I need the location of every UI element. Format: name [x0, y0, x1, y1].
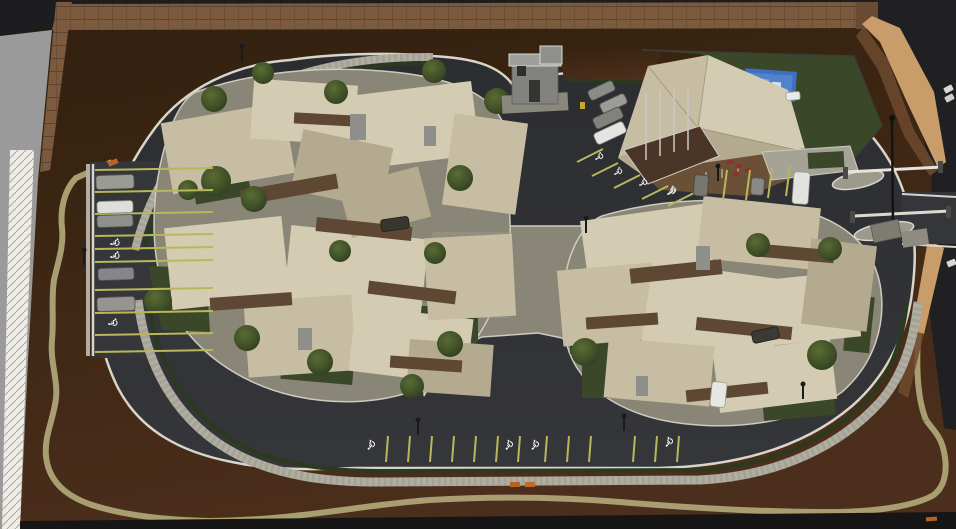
tree [201, 86, 227, 112]
street-light-head [240, 44, 245, 49]
accessible-parking-symbol: ♿ [108, 236, 124, 249]
vehicle-van-white [792, 171, 810, 204]
vehicle-car [693, 175, 708, 197]
tree [818, 237, 842, 261]
gate-post [843, 167, 848, 179]
render-stage: ♿♿♿♿♿♿♿♿♿♿♿♿ [0, 0, 956, 529]
vehicle-car [750, 178, 764, 196]
perimeter-wall-north [52, 2, 876, 30]
tree [400, 374, 424, 398]
tree [447, 165, 473, 191]
roof-stair-core [298, 328, 312, 350]
tree [234, 325, 260, 351]
street-light-head [716, 164, 721, 169]
tree [252, 62, 274, 84]
tree [241, 186, 267, 212]
accessible-parking-symbol: ♿ [106, 316, 122, 329]
guard-house-window [517, 66, 526, 76]
tree [422, 59, 446, 83]
tree [307, 349, 333, 375]
site-3d-viewport[interactable]: ♿♿♿♿♿♿♿♿♿♿♿♿ [0, 0, 956, 529]
street-light-head [584, 216, 589, 221]
roof-stair-core [636, 376, 648, 396]
hedge-north-of-lot [565, 80, 642, 82]
street-light-head [622, 414, 627, 419]
gate-post [850, 211, 855, 223]
roof-stair-core [424, 126, 436, 146]
accessible-parking-symbol: ♿ [108, 249, 124, 262]
tree [571, 338, 599, 366]
gate-light-pole [892, 120, 893, 228]
vehicle-car [97, 214, 133, 227]
gate-light-head [889, 115, 895, 121]
tree [437, 331, 463, 357]
fire-hydrant [580, 102, 585, 109]
gate-post [946, 206, 951, 218]
bench [510, 482, 520, 487]
tree [424, 242, 446, 264]
gate-post [938, 161, 943, 173]
vehicle-van [97, 296, 135, 311]
vehicle-van-white [710, 381, 728, 407]
roof-stair-core [350, 114, 366, 140]
vehicle-car [98, 267, 134, 280]
guard-house-tower [540, 46, 562, 64]
street-light-head [801, 382, 806, 387]
street-light-head [82, 248, 87, 253]
roof-stair-core [696, 246, 710, 270]
bench [525, 482, 535, 487]
vehicle-car [97, 200, 133, 213]
tree [329, 240, 351, 262]
tree [807, 340, 837, 370]
tree [324, 80, 348, 104]
vehicle-van [96, 174, 134, 189]
bench [926, 517, 937, 522]
guard-house-door [529, 80, 540, 102]
golf-cart [786, 91, 801, 100]
street-light-head [416, 418, 421, 423]
residence-roof [442, 113, 528, 214]
tree [201, 166, 231, 196]
tree [746, 233, 770, 257]
east-island-lawn [808, 151, 845, 169]
